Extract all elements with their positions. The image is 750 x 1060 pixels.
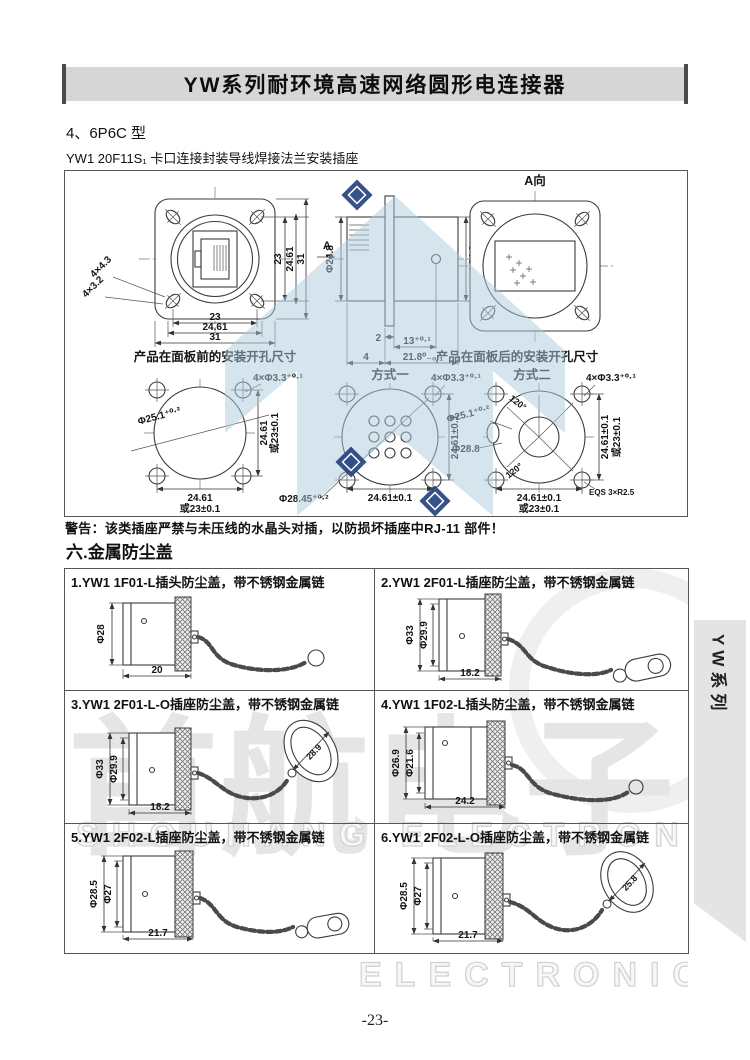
dim-label: Φ29.9 bbox=[109, 755, 120, 783]
cutout-method-2: 方式二 120° 120° 4×Φ3.3⁺⁰·¹ Φ25.1⁺⁰·² Φ28.8… bbox=[446, 367, 637, 515]
dust-cap-drawing-3: Φ33 Φ29.9 18.2 28.9 bbox=[65, 709, 371, 817]
dim-label: Φ33 bbox=[405, 625, 416, 645]
dim-label: Φ28.5 bbox=[89, 880, 100, 908]
watermark-en-text-2: ELECTRONICS bbox=[359, 956, 688, 995]
dust-cap-cell-4: 4.YW1 1F02-L插头防尘盖，带不锈钢金属链 Φ26.9 Φ21.6 24… bbox=[375, 691, 688, 824]
dim-label: 4×3.2 bbox=[80, 274, 106, 300]
dust-cap-drawing-4: Φ26.9 Φ21.6 24.2 bbox=[375, 709, 681, 817]
cutout-method-1: 方式一 4×Φ3.3⁺⁰·¹ 24.61±0.1 Φ28.45⁺⁰·² 24.6… bbox=[279, 367, 481, 505]
dim-label: 24.61 bbox=[259, 420, 270, 445]
dust-cap-cell-5: 5.YW1 2F02-L插座防尘盖，带不锈钢金属链 Φ28.5 Φ27 21.7 bbox=[65, 824, 375, 953]
method-2-title: 方式二 bbox=[513, 367, 551, 382]
series-side-tab: YW系列 bbox=[694, 620, 746, 942]
dust-cap-drawing-5: Φ28.5 Φ27 21.7 bbox=[65, 842, 371, 944]
installation-drawing-panel: 23 24.61 31 23 24.61 31 4×4.3 4×3.2 产品在面… bbox=[64, 170, 688, 517]
dim-label: Φ27 bbox=[103, 884, 114, 904]
cutout-front: 4×Φ3.3⁺⁰·¹ Φ25.1⁺⁰·² 24.61 或23±0.1 24.61… bbox=[131, 373, 303, 515]
title-bar: YW系列耐环境高速网络圆形电连接器 bbox=[64, 67, 686, 101]
title-bar-left-tick bbox=[62, 64, 66, 104]
metal-chain bbox=[512, 765, 628, 800]
metal-chain bbox=[198, 773, 288, 798]
dim-label: 18.2 bbox=[460, 668, 480, 679]
section-4-heading: 4、6P6C 型 bbox=[66, 122, 146, 143]
dim-label: 24.61±0.1 bbox=[368, 493, 413, 504]
connector-engineering-drawing: 23 24.61 31 23 24.61 31 4×4.3 4×3.2 产品在面… bbox=[65, 171, 687, 516]
dim-label: 31 bbox=[209, 332, 221, 343]
metal-chain bbox=[200, 898, 293, 932]
dim-label: Φ26.9 bbox=[391, 749, 402, 777]
warning-text: 警告：该类插座严禁与未压线的水晶头对插，以防损坏插座中RJ-11 部件！ bbox=[65, 518, 504, 537]
dust-cap-cell-6: 6.YW1 2F02-L-O插座防尘盖，带不锈钢金属链 Φ28.5 Φ27 21… bbox=[375, 824, 688, 953]
dim-label: 21.7 bbox=[458, 930, 478, 941]
dim-label: Φ28.8 bbox=[452, 444, 480, 455]
dim-label: Φ21.6 bbox=[405, 749, 416, 777]
dim-label: EQS 3×R2.5 bbox=[589, 488, 635, 497]
metal-chain bbox=[198, 637, 306, 670]
view-a-label: A向 bbox=[524, 173, 546, 188]
dim-label: 4 bbox=[363, 352, 369, 363]
dim-label: 2 bbox=[375, 333, 381, 344]
dust-cap-drawing-6: Φ28.5 Φ27 21.7 25.8 bbox=[375, 842, 681, 944]
dim-label: 4×Φ3.3⁺⁰·¹ bbox=[586, 373, 636, 384]
dust-cap-cell-1: 1.YW1 1F01-L插头防尘盖，带不锈钢金属链 Φ28 20 bbox=[65, 569, 375, 691]
dim-label: Φ33 bbox=[95, 759, 106, 779]
chain-eyelet bbox=[611, 652, 673, 683]
caption-rear: 产品在面板后的安装开孔尺寸 bbox=[436, 349, 599, 364]
dim-label: 21.7 bbox=[148, 928, 168, 939]
dim-label: Φ24.8 bbox=[325, 245, 336, 273]
page-number: -23- bbox=[0, 1012, 750, 1030]
dim-label: 24.61 bbox=[187, 493, 212, 504]
dim-label: 4×Φ3.3⁺⁰·¹ bbox=[253, 373, 303, 384]
a-direction-view: A向 产品在面板后的安装开孔尺寸 bbox=[436, 173, 613, 364]
dust-cap-drawing-2: Φ33 Φ29.9 18.2 bbox=[375, 587, 681, 683]
chain-ring bbox=[629, 780, 643, 794]
chain-eyelet bbox=[294, 912, 351, 942]
metal-chain bbox=[508, 639, 611, 674]
dim-label: 18.2 bbox=[150, 802, 170, 813]
dim-label: 4×4.3 bbox=[88, 254, 114, 280]
dim-label: 20 bbox=[151, 665, 163, 676]
dim-label: 或23±0.1 bbox=[519, 502, 560, 515]
dim-label: 23 bbox=[273, 253, 284, 265]
front-view: 23 24.61 31 23 24.61 31 4×4.3 4×3.2 产品在面… bbox=[80, 187, 309, 364]
dim-label: 13⁺⁰·¹ bbox=[403, 336, 431, 347]
dim-label: 或23±0.1 bbox=[268, 412, 281, 453]
section-6-heading: 六.金属防尘盖 bbox=[66, 538, 173, 563]
catalog-page: 首航电子 SHOUHANG ELECTRONICS ELECTRONICS YW… bbox=[0, 0, 750, 1060]
dim-label: Φ29.9 bbox=[419, 621, 430, 649]
dim-label: Φ27 bbox=[413, 886, 424, 906]
series-tab-label: YW系列 bbox=[708, 634, 733, 715]
model-designation: YW1 20F11S₁ 卡口连接封装导线焊接法兰安装插座 bbox=[66, 148, 358, 167]
dim-label: 4×Φ3.3⁺⁰·¹ bbox=[431, 373, 481, 384]
dim-label: 24.61±0.1 bbox=[517, 493, 562, 504]
caption-front: 产品在面板前的安装开孔尺寸 bbox=[134, 349, 297, 364]
dim-label: 31 bbox=[296, 253, 307, 265]
title-bar-right-tick bbox=[684, 64, 688, 104]
dim-label: 24.61±0.1 bbox=[600, 414, 611, 459]
dust-cap-drawing-1: Φ28 20 bbox=[65, 587, 371, 683]
dust-cap-cell-3: 3.YW1 2F01-L-O插座防尘盖，带不锈钢金属链 Φ33 Φ29.9 18… bbox=[65, 691, 375, 824]
dim-label: 或23±0.1 bbox=[180, 502, 221, 515]
dim-label: 或23±0.1 bbox=[610, 416, 623, 457]
method-1-title: 方式一 bbox=[371, 367, 409, 382]
dim-label: 24.61 bbox=[285, 246, 296, 271]
dim-label: Φ28.5 bbox=[399, 882, 410, 910]
chain-ring bbox=[308, 650, 324, 666]
metal-chain bbox=[510, 902, 602, 930]
dim-label: Φ25.1⁺⁰·² bbox=[446, 404, 492, 425]
page-title: YW系列耐环境高速网络圆形电连接器 bbox=[184, 69, 567, 99]
dust-cap-grid: 1.YW1 1F01-L插头防尘盖，带不锈钢金属链 Φ28 20 2.YW1 2… bbox=[64, 568, 689, 954]
dim-label: Φ28.45⁺⁰·² bbox=[279, 494, 329, 505]
side-view: A Φ24.8 Φ24.8 2 13⁺⁰·¹ 4 21.8⁰₋₀.₁ bbox=[317, 196, 479, 365]
dust-cap-cell-2: 2.YW1 2F01-L插座防尘盖，带不锈钢金属链 Φ33 Φ29.9 18.2 bbox=[375, 569, 688, 691]
dim-label: 24.2 bbox=[455, 796, 475, 807]
dim-label: Φ28 bbox=[96, 624, 107, 644]
